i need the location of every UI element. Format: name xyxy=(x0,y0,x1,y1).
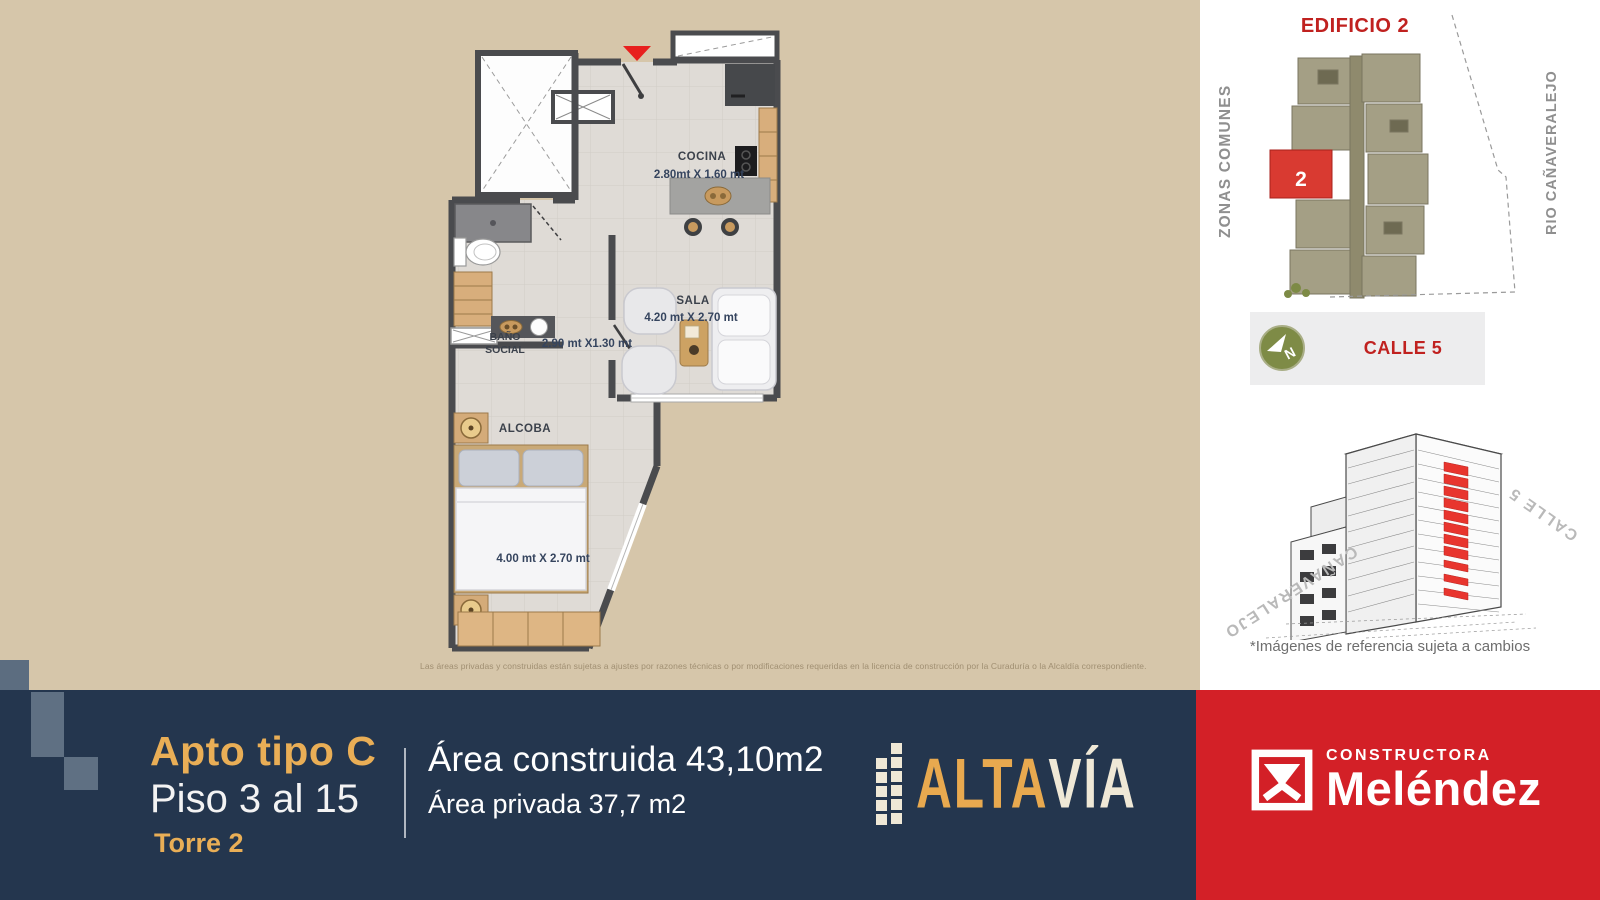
dims-bano: 2.90 mt X1.30 mt xyxy=(542,338,632,350)
footer-divider xyxy=(404,748,406,838)
building-render: CAÑAVERALEJO CALLE 5 xyxy=(1216,392,1584,640)
dims-cocina: 2.80mt X 1.60 mt xyxy=(654,169,744,181)
label-bano-2: SOCIAL xyxy=(485,344,525,356)
label-sala: SALA xyxy=(676,295,709,307)
balcony-ledge xyxy=(673,33,777,60)
street-strip: N CALLE 5 xyxy=(1250,312,1485,385)
label-zonas-comunes: ZONAS COMUNES xyxy=(1217,85,1234,238)
melendez-name: Meléndez xyxy=(1326,765,1542,812)
floor-plan-area: COCINA 2.80mt X 1.60 mt SALA 4.20 mt X 2… xyxy=(0,0,1200,690)
built-area: Área construida 43,10m2 xyxy=(428,740,824,780)
area-info: Área construida 43,10m2 Área privada 37,… xyxy=(428,740,824,820)
highlighted-unit-number: 2 xyxy=(1295,168,1307,191)
altavia-logo-squares xyxy=(891,743,902,824)
render-caption: *Imágenes de referencia sujeta a cambios xyxy=(1210,638,1570,655)
lot-boundary xyxy=(1452,15,1515,292)
melendez-wordmark: CONSTRUCTORA Meléndez xyxy=(1326,748,1542,812)
label-alcoba: ALCOBA xyxy=(499,423,551,435)
highlighted-unit: 2 xyxy=(1270,150,1332,198)
melendez-m-icon xyxy=(1250,748,1314,812)
altavia-wordmark: ALTA VÍA xyxy=(916,743,1137,824)
dims-sala: 4.20 mt X 2.70 mt xyxy=(644,312,737,324)
corner-deco-square xyxy=(31,692,64,757)
apartment-type: Apto tipo C xyxy=(150,728,376,775)
highlighted-floors xyxy=(1444,462,1468,600)
altavia-gold-text: ALTA xyxy=(916,743,1048,824)
site-plan: EDIFICIO 2 2 xyxy=(1200,0,1600,300)
altavia-logo: ALTA VÍA xyxy=(876,742,1156,825)
entrance-triangle-icon xyxy=(623,46,651,61)
corner-deco-square xyxy=(64,757,98,790)
flyer-root: COCINA 2.80mt X 1.60 mt SALA 4.20 mt X 2… xyxy=(0,0,1600,900)
altavia-logo-squares xyxy=(876,758,887,825)
label-bano-1: BAÑO xyxy=(490,330,521,343)
apartment-floor-plan: COCINA 2.80mt X 1.60 mt SALA 4.20 mt X 2… xyxy=(425,20,785,665)
street-name: CALLE 5 xyxy=(1328,338,1478,359)
dims-alcoba: 4.00 mt X 2.70 mt xyxy=(496,553,589,565)
apartment-info: Apto tipo C Piso 3 al 15 Torre 2 xyxy=(150,728,376,859)
label-cocina: COCINA xyxy=(678,151,726,163)
compass-north-icon: N xyxy=(1258,324,1306,372)
label-rio-canaveralejo: RIO CAÑAVERALEJO xyxy=(1542,70,1560,235)
altavia-cream-text: VÍA xyxy=(1048,743,1136,824)
sidebar: EDIFICIO 2 2 xyxy=(1200,0,1600,690)
site-plan-title: EDIFICIO 2 xyxy=(1301,15,1409,37)
apartment-floors: Piso 3 al 15 xyxy=(150,777,376,822)
melendez-logo: CONSTRUCTORA Meléndez xyxy=(1250,748,1542,812)
apartment-tower: Torre 2 xyxy=(154,828,376,859)
render-street-right: CALLE 5 xyxy=(1506,484,1582,544)
corner-deco-square xyxy=(0,660,29,690)
private-area: Área privada 37,7 m2 xyxy=(428,789,824,820)
legal-disclaimer: Las áreas privadas y construidas están s… xyxy=(420,661,1165,671)
